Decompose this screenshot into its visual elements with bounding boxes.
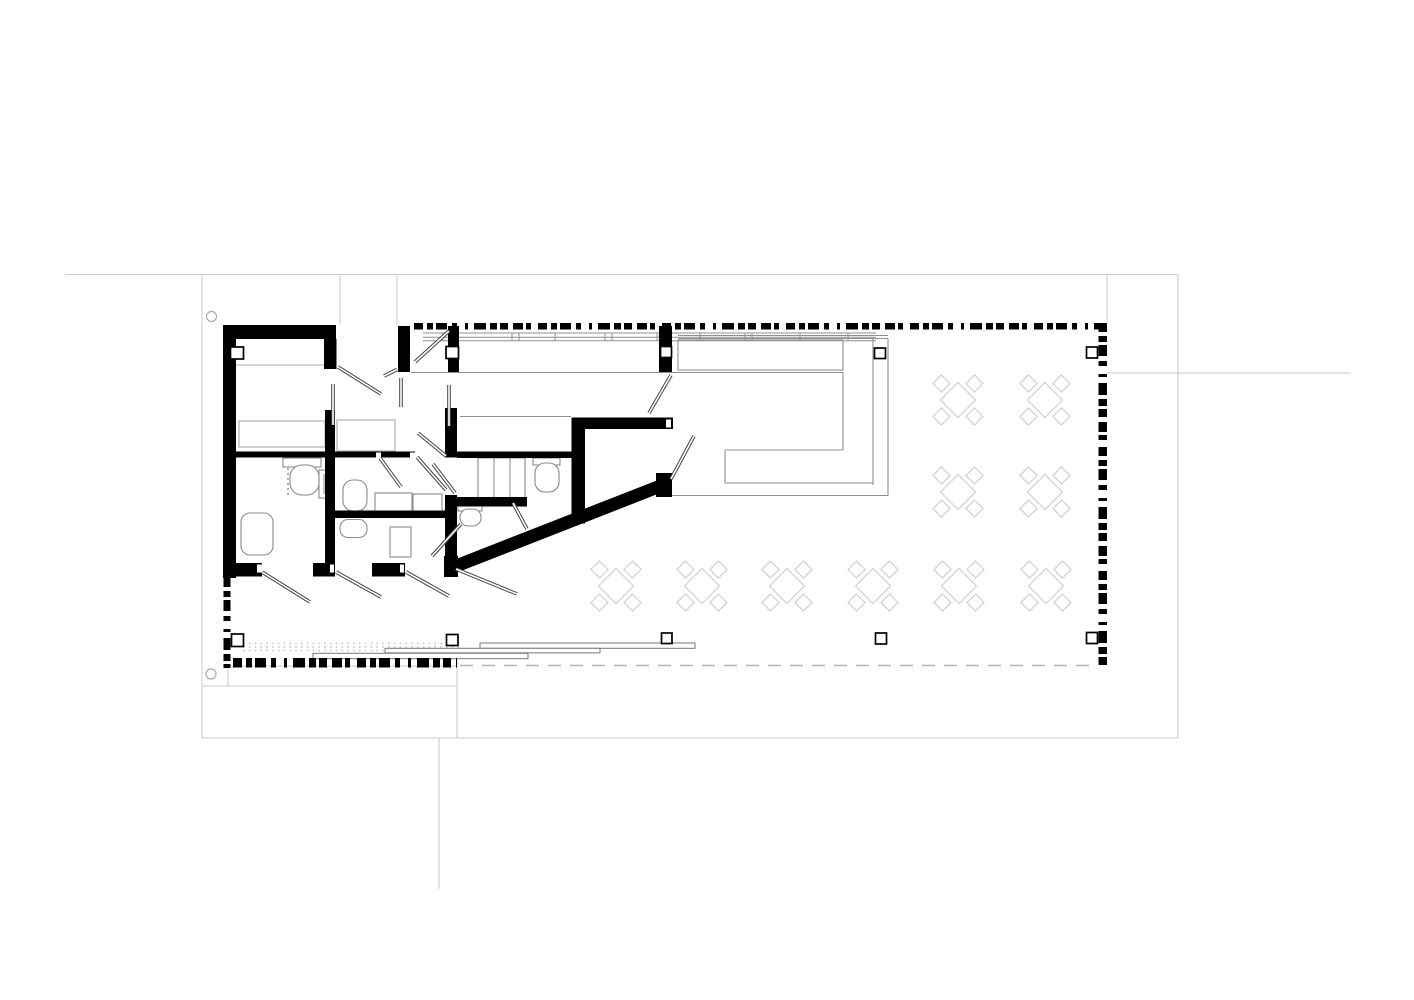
checker-window-wall-block xyxy=(1099,361,1108,366)
checker-window-wall-block xyxy=(224,654,231,661)
checker-window-wall-block xyxy=(1099,323,1108,332)
checker-window-wall-block xyxy=(910,323,919,330)
checker-window-wall-block xyxy=(1099,609,1108,614)
checker-window-wall-block xyxy=(309,658,316,668)
table-chair xyxy=(1053,467,1070,484)
column-marker xyxy=(876,633,887,644)
checker-window-wall-block xyxy=(224,664,231,668)
fixture-bowl-outline xyxy=(241,513,273,555)
table-chair xyxy=(881,594,898,611)
furniture-outline xyxy=(239,421,325,447)
checker-window-wall-block xyxy=(862,323,869,330)
checker-window-wall-block xyxy=(414,323,423,330)
door-leaf-core xyxy=(456,569,517,594)
checker-window-wall-block xyxy=(319,658,327,668)
checker-window-wall-block xyxy=(684,323,695,330)
checker-window-wall-block xyxy=(799,323,805,330)
checker-window-wall-block xyxy=(722,323,734,330)
checker-window-wall-block xyxy=(637,323,647,330)
wall-door-notch xyxy=(330,565,334,573)
terrace-edge-outline xyxy=(228,666,457,686)
checker-window-wall-block xyxy=(624,323,632,330)
wall xyxy=(223,325,336,339)
table-chair xyxy=(1020,408,1037,425)
table-chair xyxy=(848,561,865,578)
checker-window-wall-block xyxy=(224,578,231,587)
checker-window-wall-block xyxy=(1099,399,1108,406)
table-chair xyxy=(1021,561,1038,578)
table-chair xyxy=(1053,408,1070,425)
checker-window-wall-block xyxy=(224,591,231,597)
checker-window-wall-block xyxy=(1072,323,1077,330)
checker-window-wall-block xyxy=(1099,571,1108,580)
table-chair xyxy=(591,561,608,578)
furniture-outline xyxy=(337,420,395,451)
checker-window-wall-block xyxy=(233,658,242,668)
survey-point-circle xyxy=(206,669,216,679)
table-chair xyxy=(795,594,812,611)
wall xyxy=(445,408,457,458)
checker-window-wall-block xyxy=(513,323,523,330)
column-marker xyxy=(1087,633,1098,644)
checker-window-wall-block xyxy=(224,629,231,632)
table-chair xyxy=(1053,500,1070,517)
fixture-bowl-outline xyxy=(290,465,319,495)
wall xyxy=(228,563,262,577)
door-leaf-core xyxy=(338,367,381,394)
wall-door-notch xyxy=(376,453,381,458)
wall xyxy=(325,410,335,566)
checker-window-wall-block xyxy=(1085,323,1088,330)
checker-window-wall-block xyxy=(898,323,903,330)
checker-window-wall-block xyxy=(700,323,705,330)
door-leaf-core xyxy=(649,375,671,413)
checker-window-wall-block xyxy=(1099,593,1108,604)
checker-window-wall-block xyxy=(589,323,592,330)
checker-window-wall-block xyxy=(1047,323,1053,330)
floor-plan-svg xyxy=(0,0,1414,1000)
checker-window-wall-block xyxy=(456,658,457,668)
checker-window-wall-block xyxy=(500,323,508,330)
table-chair xyxy=(966,500,983,517)
checker-window-wall-block xyxy=(1056,323,1067,330)
wall-door-notch xyxy=(257,565,262,573)
checker-window-wall-block xyxy=(224,616,231,621)
checker-window-wall-block xyxy=(293,658,305,668)
checker-window-wall-block xyxy=(986,323,993,330)
door-leaf-core xyxy=(384,370,397,377)
checker-window-wall-block xyxy=(1099,485,1108,490)
checker-window-wall-block xyxy=(1099,345,1108,356)
table-chair xyxy=(1020,375,1037,392)
checker-window-wall-block xyxy=(1099,435,1108,440)
checker-window-wall-block xyxy=(1099,507,1108,519)
door-leaf-core xyxy=(415,331,449,362)
checker-window-wall-block xyxy=(465,323,468,330)
checker-window-wall-block xyxy=(408,658,411,668)
table-chair xyxy=(967,594,984,611)
checker-window-wall-block xyxy=(1099,533,1108,541)
kitchen-island-outline xyxy=(678,340,843,370)
checker-window-wall-block xyxy=(1099,523,1108,530)
checker-window-wall-block xyxy=(271,658,276,668)
checker-window-wall-block xyxy=(1099,409,1108,417)
column-marker xyxy=(1087,347,1098,358)
checker-window-wall-block xyxy=(774,323,779,330)
checker-window-wall-block xyxy=(1099,374,1108,377)
checker-window-wall-block xyxy=(824,323,829,330)
table-chair xyxy=(762,561,779,578)
checker-window-wall-block xyxy=(1099,422,1108,432)
table-chair xyxy=(966,408,983,425)
table-chair xyxy=(881,561,898,578)
checker-window-wall-block xyxy=(224,600,231,611)
checker-window-wall-block xyxy=(436,323,447,330)
table-chair xyxy=(624,594,641,611)
checker-window-wall-block xyxy=(948,323,953,330)
checker-window-wall-block xyxy=(837,323,840,330)
checker-window-wall-block xyxy=(923,323,929,330)
checker-window-wall-block xyxy=(1099,469,1108,480)
table-chair xyxy=(933,408,950,425)
checker-window-wall-block xyxy=(1099,460,1108,466)
checker-window-wall-block xyxy=(379,658,390,668)
table-chair xyxy=(967,561,984,578)
checker-window-wall-block xyxy=(560,323,571,330)
checker-window-wall-block xyxy=(996,323,1004,330)
fixture-bowl-outline xyxy=(535,463,559,492)
checker-window-wall-block xyxy=(713,323,716,330)
checker-window-wall-block xyxy=(675,323,681,330)
table-chair xyxy=(933,500,950,517)
table-chair xyxy=(795,561,812,578)
checker-window-wall-block xyxy=(576,323,581,330)
checker-window-wall-block xyxy=(370,658,376,668)
checker-window-wall-block xyxy=(526,323,531,330)
table-chair xyxy=(1020,467,1037,484)
door-leaf-core xyxy=(418,433,446,456)
checker-window-wall-block xyxy=(1099,447,1108,456)
table-chair xyxy=(762,594,779,611)
table-chair xyxy=(624,561,641,578)
wall xyxy=(398,326,410,372)
checker-window-wall-block xyxy=(395,658,400,668)
table-chair xyxy=(933,467,950,484)
checker-window-wall-block xyxy=(427,323,433,330)
column-marker xyxy=(661,347,672,358)
checker-window-wall-block xyxy=(786,323,795,330)
fixture-outline xyxy=(390,527,411,557)
checker-window-wall-block xyxy=(885,323,895,330)
table-chair xyxy=(934,594,951,611)
checker-window-wall-block xyxy=(417,658,429,668)
survey-point-circle xyxy=(207,312,217,322)
door-leaf-core xyxy=(406,572,449,596)
checker-window-wall-block xyxy=(1099,647,1108,654)
table-chair xyxy=(710,561,727,578)
column-marker xyxy=(662,633,673,644)
wall xyxy=(457,452,573,459)
column-marker xyxy=(232,634,244,647)
checker-window-wall-block xyxy=(761,323,771,330)
checker-window-wall-block xyxy=(1099,631,1108,643)
sliding-panel xyxy=(385,648,600,653)
checker-window-wall-block xyxy=(345,658,350,668)
fixture-bowl-outline xyxy=(460,509,481,526)
checker-window-wall-block xyxy=(1099,559,1108,564)
table-chair xyxy=(934,561,951,578)
checker-window-wall-block xyxy=(433,658,440,668)
table-chair xyxy=(966,467,983,484)
checker-window-wall-block xyxy=(1022,323,1027,330)
checker-window-wall-block xyxy=(650,323,655,330)
checker-window-wall-block xyxy=(1099,336,1108,342)
checker-window-wall-block xyxy=(551,323,557,330)
fixture-bowl-outline xyxy=(340,520,367,538)
fixture-outline xyxy=(375,493,412,513)
checker-window-wall-block xyxy=(255,658,266,668)
checker-window-wall-block xyxy=(961,323,964,330)
checker-window-wall-block xyxy=(808,323,819,330)
wall-door-notch xyxy=(410,453,415,458)
checker-window-wall-block xyxy=(332,658,342,668)
sliding-panel xyxy=(313,653,528,658)
column-marker xyxy=(875,348,886,359)
wall xyxy=(325,511,445,519)
checker-window-wall-block xyxy=(538,323,547,330)
wall-door-notch xyxy=(400,565,404,573)
checker-window-wall-block xyxy=(1099,546,1108,556)
checker-window-wall-block xyxy=(1034,323,1043,330)
fixture-outline xyxy=(413,494,442,513)
wall xyxy=(324,339,337,369)
fixture-bowl-outline xyxy=(343,480,367,511)
table-chair xyxy=(677,561,694,578)
checker-window-wall-block xyxy=(443,658,451,668)
table-chair xyxy=(1054,594,1071,611)
wall-door-notch xyxy=(666,420,671,428)
checker-window-wall-block xyxy=(970,323,982,330)
table-chair xyxy=(1020,500,1037,517)
checker-window-wall-block xyxy=(872,323,880,330)
checker-window-wall-block xyxy=(932,323,943,330)
checker-window-wall-block xyxy=(738,323,745,330)
table-chair xyxy=(677,594,694,611)
checker-window-wall-block xyxy=(284,658,287,668)
checker-window-wall-block xyxy=(357,658,366,668)
table-chair xyxy=(1021,594,1038,611)
checker-window-wall-block xyxy=(246,658,252,668)
door-leaf-core xyxy=(671,436,694,479)
checker-window-wall-block xyxy=(748,323,756,330)
checker-window-wall-block xyxy=(490,323,497,330)
checker-window-wall-block xyxy=(1099,657,1108,665)
checker-window-wall-block xyxy=(1099,498,1108,501)
checker-window-wall-block xyxy=(1009,323,1019,330)
table-chair xyxy=(1054,561,1071,578)
wall xyxy=(223,452,415,458)
door-leaf-core xyxy=(262,572,310,602)
wall xyxy=(572,418,586,524)
table-chair xyxy=(710,594,727,611)
table-chair xyxy=(933,375,950,392)
wall xyxy=(573,418,673,430)
checker-window-wall-block xyxy=(1099,622,1108,625)
checker-window-wall-block xyxy=(1099,584,1108,590)
table-chair xyxy=(848,594,865,611)
table-chair xyxy=(1053,375,1070,392)
floor-plan-sheet xyxy=(0,0,1414,1000)
checker-window-wall-block xyxy=(614,323,621,330)
fixture-outline xyxy=(478,458,525,498)
checker-window-wall-block xyxy=(846,323,858,330)
column-marker xyxy=(447,635,459,646)
checker-window-wall-block xyxy=(224,638,231,650)
column-marker xyxy=(231,347,244,359)
column-marker xyxy=(446,347,459,359)
checker-window-wall-block xyxy=(598,323,610,330)
checker-window-wall-block xyxy=(1099,383,1108,395)
table-chair xyxy=(591,594,608,611)
door-leaf-core xyxy=(513,503,527,529)
checker-window-wall-block xyxy=(474,323,486,330)
door-leaf-core xyxy=(380,458,401,487)
table-chair xyxy=(966,375,983,392)
